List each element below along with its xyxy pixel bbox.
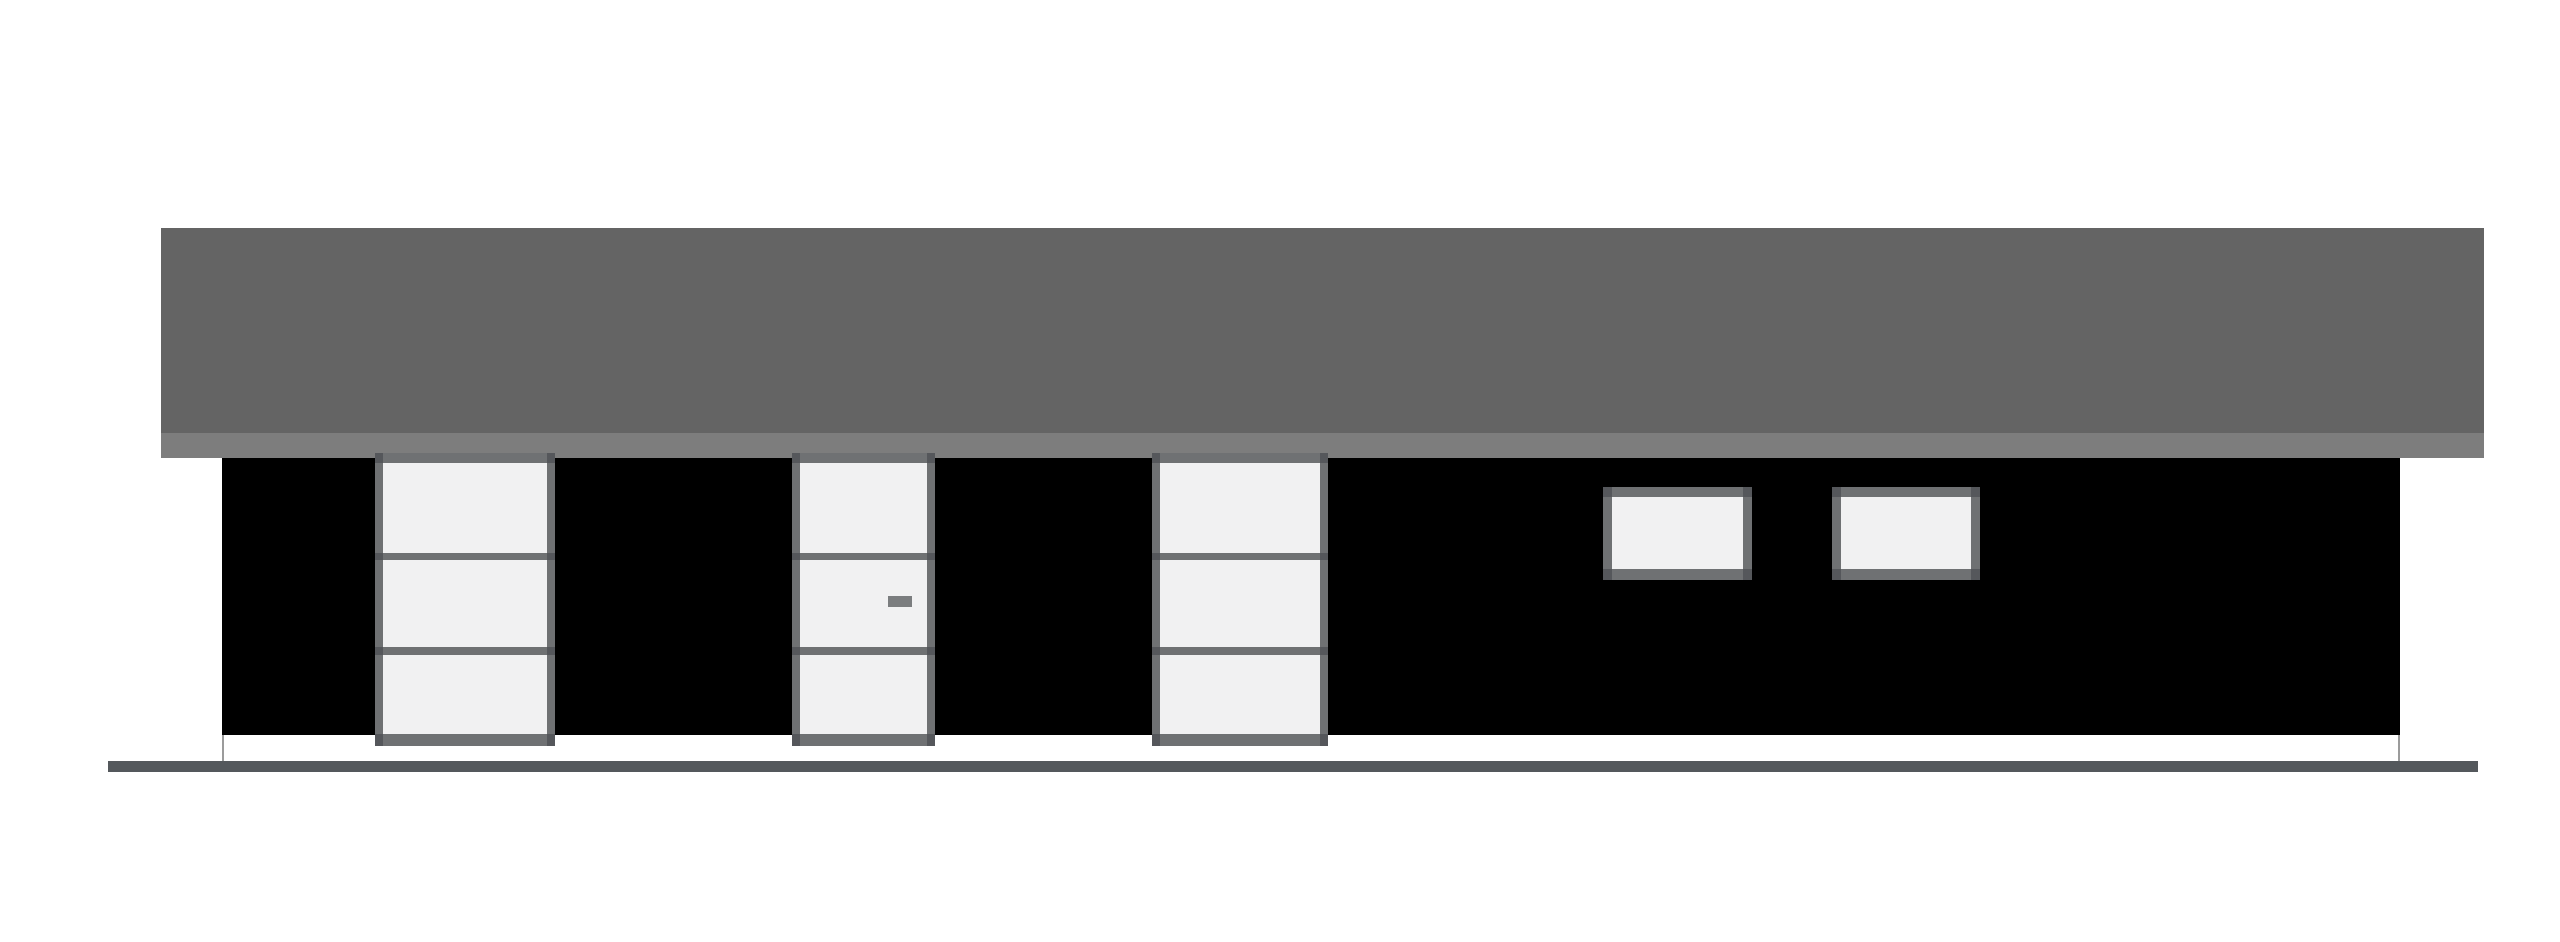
frame-corner xyxy=(1603,569,1612,580)
mullion-end xyxy=(927,553,935,560)
window-pane xyxy=(383,655,547,734)
mullion-end xyxy=(1152,553,1160,560)
mullion-end xyxy=(792,647,800,655)
mullion-end xyxy=(1152,647,1160,655)
frame-corner xyxy=(1832,487,1841,497)
small-window-right xyxy=(1832,487,1980,580)
frame-corner xyxy=(1743,569,1752,580)
door-pane xyxy=(800,463,927,553)
mullion-end xyxy=(1320,647,1328,655)
mullion-end xyxy=(547,647,555,655)
frame-corner xyxy=(375,453,383,463)
frame-corner xyxy=(792,734,800,746)
door-pane xyxy=(800,655,927,734)
window-pane xyxy=(1841,497,1971,569)
small-window-left xyxy=(1603,487,1752,580)
window-pane xyxy=(1612,497,1743,569)
mullion-end xyxy=(375,647,383,655)
frame-corner xyxy=(1152,734,1160,746)
frame-corner xyxy=(375,734,383,746)
frame-corner xyxy=(1971,487,1980,497)
frame-corner xyxy=(1832,569,1841,580)
mullion-end xyxy=(1320,553,1328,560)
frame-corner xyxy=(1320,734,1328,746)
frame-corner xyxy=(547,734,555,746)
frame-corner xyxy=(792,453,800,463)
frame-corner xyxy=(1320,453,1328,463)
mullion-end xyxy=(792,553,800,560)
window-pane xyxy=(1160,560,1320,647)
house-elevation-drawing xyxy=(0,0,2560,942)
frame-corner xyxy=(1743,487,1752,497)
roof xyxy=(161,228,2484,433)
mullion-end xyxy=(375,553,383,560)
frame-corner xyxy=(927,734,935,746)
tall-window-left xyxy=(375,453,555,746)
frame-corner xyxy=(547,453,555,463)
window-pane xyxy=(1160,655,1320,734)
mullion-end xyxy=(927,647,935,655)
entry-door xyxy=(792,453,935,746)
frame-corner xyxy=(1971,569,1980,580)
frame-corner xyxy=(1152,453,1160,463)
frame-corner xyxy=(927,453,935,463)
door-handle xyxy=(888,596,912,607)
window-pane xyxy=(383,560,547,647)
mullion-end xyxy=(547,553,555,560)
window-pane xyxy=(1160,463,1320,553)
tall-window-middle xyxy=(1152,453,1328,746)
window-pane xyxy=(383,463,547,553)
frame-corner xyxy=(1603,487,1612,497)
ground-line xyxy=(108,761,2478,772)
